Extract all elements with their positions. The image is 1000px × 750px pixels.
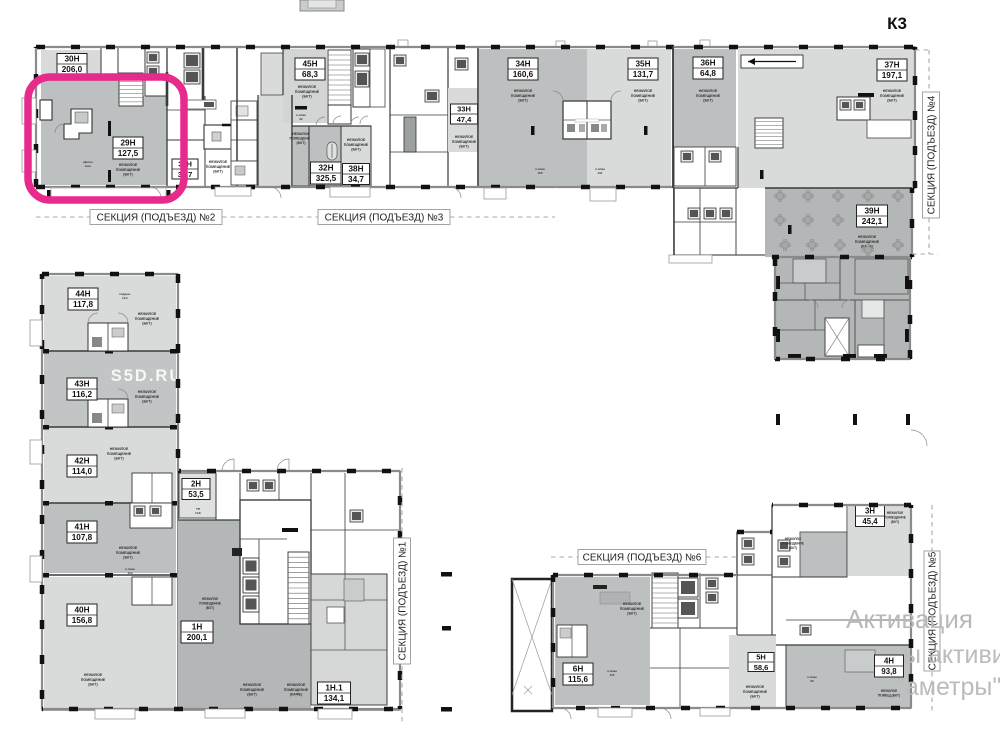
- svg-text:ПОМЕЩЕНИЕ: ПОМЕЩЕНИЕ: [884, 515, 906, 519]
- svg-text:ПОМЕЩЕНИЕ: ПОМЕЩЕНИЕ: [511, 94, 536, 98]
- svg-text:115,6: 115,6: [568, 675, 588, 684]
- svg-text:ПОМЕЩЕНИЕ: ПОМЕЩЕНИЕ: [199, 601, 221, 605]
- svg-text:ПОМЕЩЕНИЕ: ПОМЕЩЕНИЕ: [743, 690, 768, 694]
- svg-text:200,1: 200,1: [187, 633, 208, 642]
- svg-text:НЕЖИЛОЕ: НЕЖИЛОЕ: [623, 602, 642, 606]
- svg-text:ПОМЕЩЕНИЕ: ПОМЕЩЕНИЕ: [620, 607, 645, 611]
- svg-text:(БКТ): (БКТ): [88, 683, 98, 687]
- svg-text:НЕЖИЛОЕ: НЕЖИЛОЕ: [209, 160, 228, 164]
- svg-text:93: 93: [810, 679, 814, 683]
- svg-text:НЕЖИЛОЕ: НЕЖИЛОЕ: [202, 597, 218, 601]
- svg-text:НЕЖИЛОЕ: НЕЖИЛОЕ: [883, 89, 902, 93]
- svg-text:(БКТ): (БКТ): [123, 173, 133, 177]
- svg-text:НЕЖИЛОЕ: НЕЖИЛОЕ: [298, 85, 317, 89]
- svg-text:СЕКЦИЯ (ПОДЪЕЗД) №2: СЕКЦИЯ (ПОДЪЕЗД) №2: [97, 213, 216, 224]
- svg-text:СЕКЦИЯ (ПОДЪЕЗД) №3: СЕКЦИЯ (ПОДЪЕЗД) №3: [325, 213, 444, 224]
- svg-text:131: 131: [597, 171, 602, 175]
- svg-text:(БКТ): (БКТ): [518, 99, 528, 103]
- svg-text:НЕЖИЛОЕ: НЕЖИЛОЕ: [110, 447, 129, 451]
- svg-text:(БКТ): (БКТ): [351, 148, 361, 152]
- svg-text:ПОМЕЩЕНИЕ: ПОМЕЩЕНИЕ: [631, 94, 656, 98]
- svg-text:ПОМЕЩЕНИЕ: ПОМЕЩЕНИЕ: [880, 94, 905, 98]
- svg-text:6Н: 6Н: [573, 665, 584, 674]
- svg-text:НЕЖИЛОЕ: НЕЖИЛОЕ: [292, 132, 310, 136]
- svg-text:ПОМЕЩЕНИЕ: ПОМЕЩЕНИЕ: [135, 395, 160, 399]
- svg-text:НЕЖИЛОЕ: НЕЖИЛОЕ: [785, 537, 801, 541]
- svg-text:ПОМЕЩЕНИЕ: ПОМЕЩЕНИЕ: [116, 168, 141, 172]
- svg-text:68,3: 68,3: [302, 70, 318, 79]
- svg-text:НЕЖИЛОЕ: НЕЖИЛОЕ: [243, 683, 262, 687]
- svg-text:107,8: 107,8: [72, 533, 93, 542]
- svg-text:(БКТ): (БКТ): [213, 170, 223, 174]
- svg-text:ПОМЕЩЕНИЕ: ПОМЕЩЕНИЕ: [135, 317, 160, 321]
- svg-text:(БКТ): (БКТ): [142, 400, 152, 404]
- svg-text:НЕЖИЛОЕ: НЕЖИЛОЕ: [455, 135, 474, 139]
- svg-text:СЕКЦИЯ (ПОДЪЕЗД) №1: СЕКЦИЯ (ПОДЪЕЗД) №1: [398, 541, 409, 660]
- svg-text:СЕКЦИЯ (ПОДЪЕЗД) №6: СЕКЦИЯ (ПОДЪЕЗД) №6: [583, 553, 702, 564]
- svg-text:ПОМЕЩЕНИЕ: ПОМЕЩЕНИЕ: [344, 143, 369, 147]
- svg-text:НЕЖИЛОЕ: НЕЖИЛОЕ: [699, 89, 718, 93]
- svg-text:47,4: 47,4: [457, 115, 472, 124]
- svg-text:(БКТ): (БКТ): [247, 693, 257, 697]
- svg-text:НЕЖИЛОЕ: НЕЖИЛОЕ: [119, 546, 138, 550]
- svg-text:115: 115: [610, 673, 615, 677]
- svg-text:(БКТ): (БКТ): [750, 695, 760, 699]
- svg-text:(КАФЕ): (КАФЕ): [290, 693, 303, 697]
- svg-text:40Н: 40Н: [74, 606, 89, 615]
- svg-text:2Н: 2Н: [191, 480, 201, 489]
- svg-text:№4: №4: [122, 296, 127, 300]
- svg-text:ПОМЕЩЕНИЕ: ПОМЕЩЕНИЕ: [284, 688, 309, 692]
- svg-text:ПОМЕЩЕНИЕ: ПОМЕЩЕНИЕ: [81, 678, 106, 682]
- svg-text:НЕЖИЛОЕ: НЕЖИЛОЕ: [138, 390, 157, 394]
- svg-text:34Н: 34Н: [515, 60, 530, 69]
- svg-text:117,8: 117,8: [73, 300, 93, 309]
- svg-text:ПОМЕЩЕНИЕ: ПОМЕЩЕНИЕ: [782, 541, 804, 545]
- svg-text:(БКТ): (БКТ): [123, 556, 133, 560]
- svg-text:ПОМЕЩЕНИЕ: ПОМЕЩЕНИЕ: [206, 165, 231, 169]
- svg-text:4Н: 4Н: [884, 657, 894, 666]
- svg-text:206,0: 206,0: [62, 65, 83, 74]
- svg-text:53,5: 53,5: [188, 490, 204, 499]
- svg-text:64,8: 64,8: [700, 69, 716, 78]
- svg-text:43Н: 43Н: [74, 380, 89, 389]
- svg-text:(БКТ): (БКТ): [206, 606, 214, 610]
- svg-text:(БКТ): (БКТ): [114, 457, 124, 461]
- svg-text:37Н: 37Н: [884, 61, 899, 70]
- svg-text:(БКТ): (БКТ): [142, 322, 152, 326]
- svg-text:114,0: 114,0: [72, 467, 92, 476]
- svg-text:НЕЖИЛОЕ: НЕЖИЛОЕ: [119, 163, 138, 167]
- svg-text:35Н: 35Н: [635, 60, 650, 69]
- svg-text:ы активир: ы активир: [903, 641, 1000, 669]
- svg-text:ПОМЕЩЕНИЕ: ПОМЕЩЕНИЕ: [696, 94, 721, 98]
- svg-text:41Н: 41Н: [74, 523, 89, 532]
- svg-text:(БКТ): (БКТ): [789, 546, 797, 550]
- svg-text:(БКТ): (БКТ): [887, 99, 897, 103]
- svg-text:(БКТ): (БКТ): [703, 99, 713, 103]
- svg-text:1Н.1: 1Н.1: [325, 684, 343, 693]
- svg-text:НЕЖИЛОЕ: НЕЖИЛОЕ: [746, 685, 765, 689]
- svg-text:34,7: 34,7: [348, 175, 364, 184]
- svg-text:29Н: 29Н: [120, 139, 135, 148]
- svg-text:165: 165: [537, 171, 542, 175]
- svg-text:32: 32: [299, 117, 303, 121]
- svg-text:пом.: пом.: [85, 164, 92, 168]
- svg-text:ПОМЕЩЕНИЕ: ПОМЕЩЕНИЕ: [855, 240, 880, 244]
- svg-text:№8: №8: [195, 511, 200, 515]
- svg-text:58,6: 58,6: [754, 663, 769, 672]
- svg-text:33Н: 33Н: [457, 105, 471, 114]
- svg-text:44Н: 44Н: [75, 290, 90, 299]
- svg-text:93,8: 93,8: [881, 667, 897, 676]
- svg-text:(БКТ): (БКТ): [627, 612, 637, 616]
- svg-text:НЕЖИЛОЕ: НЕЖИЛОЕ: [634, 89, 653, 93]
- svg-text:197,1: 197,1: [882, 71, 903, 80]
- svg-text:НЕЖИЛОЕ: НЕЖИЛОЕ: [887, 511, 903, 515]
- svg-text:НЕЖИЛОЕ: НЕЖИЛОЕ: [881, 689, 897, 693]
- svg-text:156,8: 156,8: [72, 616, 93, 625]
- svg-text:42Н: 42Н: [74, 457, 89, 466]
- svg-text:5Н: 5Н: [756, 653, 766, 662]
- svg-text:154: 154: [127, 571, 132, 575]
- svg-text:36Н: 36Н: [700, 59, 715, 68]
- svg-text:(БКТ): (БКТ): [459, 145, 469, 149]
- svg-text:Активация: Активация: [846, 604, 973, 634]
- svg-text:116,2: 116,2: [72, 390, 92, 399]
- svg-text:ПОМЕЩЕНИЕ: ПОМЕЩЕНИЕ: [452, 140, 477, 144]
- svg-text:45,4: 45,4: [862, 517, 878, 526]
- svg-text:(БКТ): (БКТ): [297, 141, 306, 145]
- svg-text:160,6: 160,6: [513, 70, 534, 79]
- svg-text:К3: К3: [887, 14, 907, 33]
- svg-text:1Н: 1Н: [192, 623, 203, 632]
- svg-text:(БКТ): (БКТ): [638, 99, 648, 103]
- svg-text:3Н: 3Н: [865, 507, 875, 516]
- svg-text:НЕЖИЛОЕ: НЕЖИЛОЕ: [514, 89, 533, 93]
- svg-text:38Н: 38Н: [348, 165, 363, 174]
- svg-text:ПОМЕЩЕНИЕ: ПОМЕЩЕНИЕ: [240, 688, 265, 692]
- svg-text:30Н: 30Н: [64, 55, 79, 64]
- svg-text:НЕЖИЛОЕ: НЕЖИЛОЕ: [84, 673, 103, 677]
- svg-text:НЕЖИЛОЕ: НЕЖИЛОЕ: [347, 138, 366, 142]
- svg-text:НЕЖИЛОЕ: НЕЖИЛОЕ: [138, 312, 157, 316]
- svg-text:ПОМЕЩЕНИЕ: ПОМЕЩЕНИЕ: [295, 90, 320, 94]
- svg-text:ПОМЕЩЕНИЕ: ПОМЕЩЕНИЕ: [116, 551, 141, 555]
- svg-text:S5D.RU: S5D.RU: [111, 367, 184, 385]
- svg-text:"аметры".: "аметры".: [896, 673, 1000, 701]
- svg-text:39Н: 39Н: [864, 207, 879, 216]
- svg-text:НЕЖИЛОЕ: НЕЖИЛОЕ: [858, 235, 877, 239]
- svg-text:242,1: 242,1: [862, 217, 883, 226]
- svg-text:131,7: 131,7: [633, 70, 654, 79]
- svg-text:СЕКЦИЯ (ПОДЪЕЗД) №4: СЕКЦИЯ (ПОДЪЕЗД) №4: [927, 95, 938, 214]
- svg-text:(БКТ): (БКТ): [302, 95, 312, 99]
- svg-text:134,1: 134,1: [324, 694, 345, 703]
- svg-text:ПОМЕЩЕНИЕ: ПОМЕЩЕНИЕ: [107, 452, 132, 456]
- svg-text:127,5: 127,5: [118, 149, 139, 158]
- svg-text:325,5: 325,5: [316, 174, 337, 183]
- svg-text:(БКТ): (БКТ): [891, 520, 899, 524]
- svg-text:НЕЖИЛОЕ: НЕЖИЛОЕ: [287, 683, 306, 687]
- svg-text:32Н: 32Н: [318, 164, 333, 173]
- svg-text:45Н: 45Н: [302, 60, 317, 69]
